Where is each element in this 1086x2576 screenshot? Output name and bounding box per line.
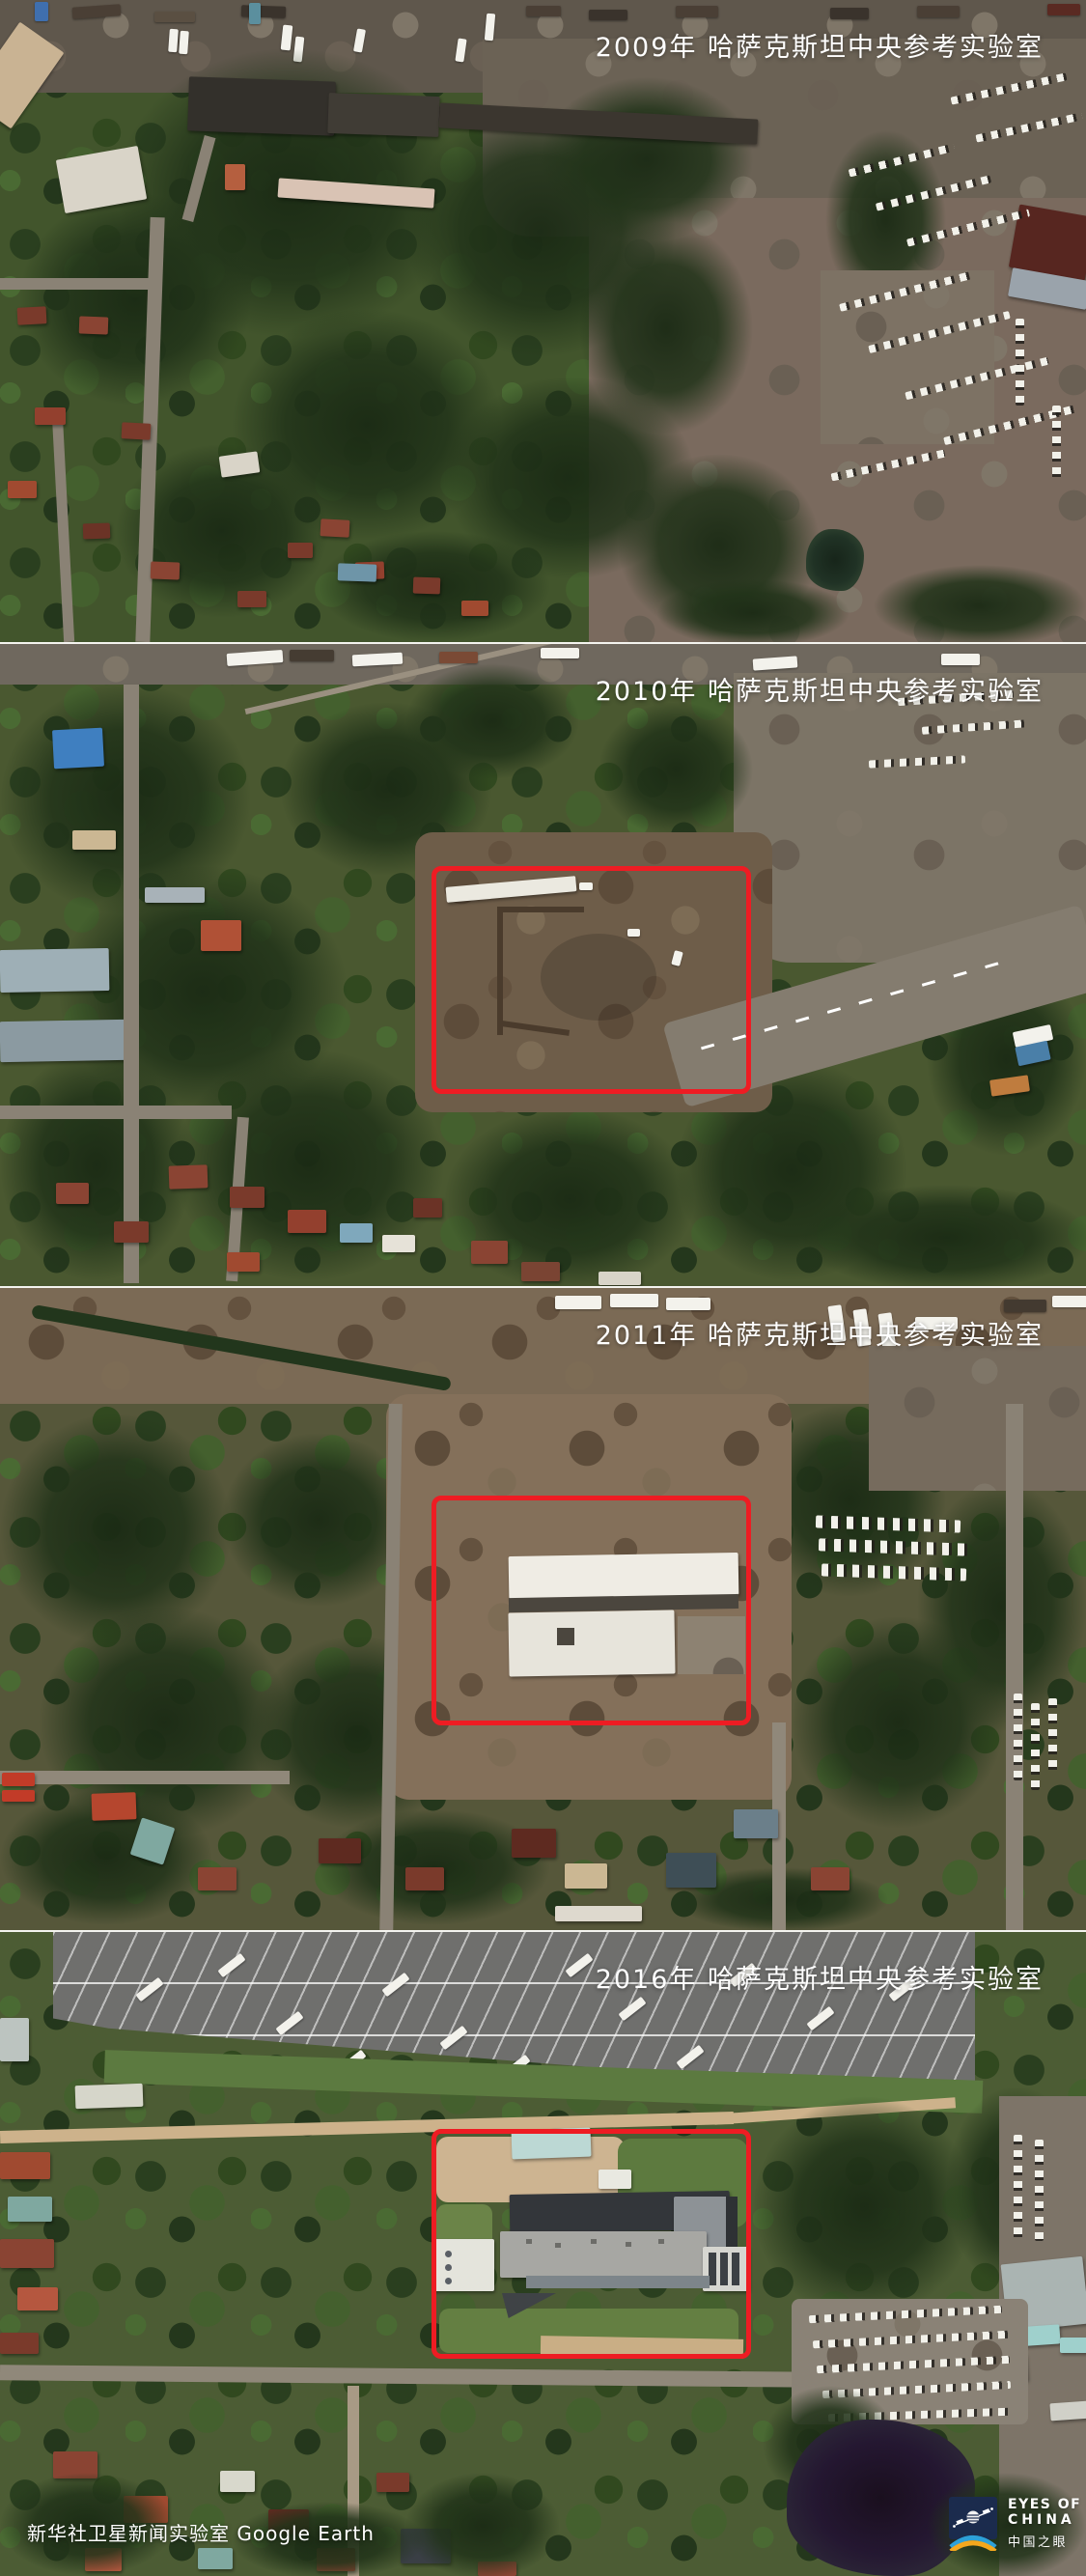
house-roof bbox=[512, 1829, 556, 1858]
house-roof bbox=[413, 1198, 442, 1218]
market-stall-roof bbox=[2, 1790, 35, 1802]
train-car bbox=[35, 2, 48, 21]
panel-year-label: 2010年 哈萨克斯坦中央参考实验室 bbox=[596, 670, 1044, 708]
panel-divider bbox=[0, 1286, 1086, 1288]
house-roof bbox=[83, 523, 111, 540]
house-roof bbox=[35, 407, 66, 425]
trees-patch bbox=[405, 663, 579, 779]
credit-text: 新华社卫星新闻实验室 Google Earth bbox=[27, 2518, 375, 2546]
satellite-panel-2016: 2016年 哈萨克斯坦中央参考实验室 bbox=[0, 1932, 1086, 2576]
trees-patch bbox=[874, 565, 1086, 642]
house-roof bbox=[565, 1863, 607, 1889]
house-roof bbox=[734, 1809, 778, 1838]
truck bbox=[249, 3, 261, 24]
house-roof bbox=[338, 563, 377, 581]
house-roof bbox=[17, 306, 47, 325]
building-roof bbox=[52, 728, 104, 770]
eyes-of-china-logo-icon bbox=[949, 2497, 997, 2551]
car-row bbox=[1016, 319, 1024, 406]
truck bbox=[179, 31, 189, 55]
house-roof bbox=[169, 1164, 209, 1189]
warehouse-roof bbox=[327, 93, 439, 137]
train-car bbox=[526, 6, 561, 16]
logo-line-2: CHINA bbox=[1008, 2512, 1081, 2528]
satellite-panel-2011: 2011年 哈萨克斯坦中央参考实验室 bbox=[0, 1288, 1086, 1930]
market-stall-roof bbox=[2, 1773, 35, 1786]
warehouse-roof bbox=[187, 76, 336, 135]
house-roof bbox=[230, 1187, 265, 1208]
house-roof bbox=[413, 577, 441, 595]
house-roof bbox=[56, 1183, 89, 1204]
house-roof bbox=[198, 1867, 237, 1890]
house-roof bbox=[555, 1906, 642, 1921]
road bbox=[124, 685, 139, 1283]
train-car bbox=[676, 6, 718, 17]
car-row bbox=[1031, 1703, 1040, 1790]
trees-patch bbox=[656, 579, 849, 642]
car-row bbox=[1014, 2135, 1022, 2241]
trees-patch bbox=[19, 193, 251, 406]
bus bbox=[555, 1296, 601, 1309]
house-roof bbox=[8, 481, 37, 498]
trees-patch bbox=[792, 1616, 1004, 1829]
building-roof bbox=[75, 2084, 144, 2109]
house-roof bbox=[376, 2473, 409, 2492]
eyes-of-china-logo: EYES OF CHINA 中国之眼 bbox=[949, 2497, 1081, 2551]
house-roof bbox=[599, 1272, 641, 1285]
train-car bbox=[290, 650, 334, 661]
pond bbox=[806, 529, 864, 591]
market-roof bbox=[1060, 2338, 1086, 2353]
house-roof bbox=[92, 1792, 137, 1821]
house-roof bbox=[0, 2152, 50, 2179]
train-car bbox=[917, 6, 960, 17]
house-roof bbox=[8, 2197, 52, 2222]
barracks-roof bbox=[0, 1020, 125, 1062]
house-roof bbox=[227, 1252, 260, 1272]
train-car bbox=[439, 652, 478, 663]
car-row bbox=[1014, 1694, 1022, 1780]
house-roof bbox=[340, 1223, 373, 1243]
truck bbox=[1052, 1296, 1086, 1307]
trees-patch bbox=[579, 222, 753, 434]
panel-divider bbox=[0, 642, 1086, 644]
train-car bbox=[1047, 4, 1080, 15]
road bbox=[0, 1106, 232, 1119]
car-row bbox=[1048, 1698, 1057, 1776]
annotation-box-2010 bbox=[432, 866, 751, 1094]
house-roof bbox=[114, 1221, 149, 1243]
house-roof bbox=[461, 601, 488, 616]
house-roof bbox=[79, 316, 109, 334]
building-roof bbox=[145, 887, 205, 903]
trees-patch bbox=[753, 2096, 975, 2318]
house-roof bbox=[471, 1241, 508, 1264]
car-row bbox=[1052, 406, 1061, 483]
panel-divider bbox=[0, 1930, 1086, 1932]
house-roof bbox=[220, 2471, 255, 2492]
house-roof bbox=[237, 591, 266, 607]
truck bbox=[168, 29, 179, 53]
annotation-box-2011 bbox=[432, 1496, 751, 1725]
road bbox=[0, 1771, 290, 1784]
train-car bbox=[830, 8, 869, 19]
house-roof bbox=[198, 2548, 233, 2569]
panel-year-label: 2016年 哈萨克斯坦中央参考实验室 bbox=[596, 1958, 1044, 1996]
parking-area bbox=[869, 1346, 1086, 1491]
house-roof bbox=[122, 422, 152, 440]
house-roof bbox=[319, 1838, 361, 1863]
annotation-box-2016 bbox=[432, 2129, 751, 2359]
house-roof bbox=[382, 1235, 415, 1252]
train-car bbox=[941, 654, 980, 665]
house-roof bbox=[17, 2287, 58, 2310]
house-roof bbox=[288, 543, 313, 558]
house-roof bbox=[405, 1867, 444, 1890]
house-roof bbox=[151, 561, 181, 579]
house-roof bbox=[225, 164, 245, 190]
trees-patch bbox=[405, 2473, 560, 2576]
logo-line-3: 中国之眼 bbox=[1008, 2532, 1081, 2550]
satellite-panel-2010: 2010年 哈萨克斯坦中央参考实验室 bbox=[0, 644, 1086, 1286]
truck bbox=[1004, 1300, 1046, 1312]
house-roof bbox=[288, 1210, 326, 1233]
market-roof bbox=[1049, 2401, 1086, 2422]
trees-patch bbox=[599, 702, 753, 837]
building-roof bbox=[72, 830, 116, 850]
trees-patch bbox=[541, 77, 753, 241]
house-roof bbox=[811, 1867, 849, 1890]
house-roof bbox=[521, 1262, 560, 1281]
logo-text-block: EYES OF CHINA 中国之眼 bbox=[1008, 2497, 1081, 2550]
trees-patch bbox=[801, 1185, 1086, 1286]
barracks-roof bbox=[0, 948, 109, 993]
road bbox=[0, 278, 154, 290]
bus bbox=[666, 1298, 710, 1310]
satellite-panel-2009: 2009年 哈萨克斯坦中央参考实验室 bbox=[0, 0, 1086, 642]
house-roof bbox=[666, 1853, 716, 1888]
bus bbox=[610, 1294, 658, 1307]
panel-year-label: 2011年 哈萨克斯坦中央参考实验室 bbox=[596, 1314, 1044, 1352]
logo-line-1: EYES OF bbox=[1008, 2497, 1081, 2512]
train-car bbox=[241, 5, 286, 18]
train-car bbox=[154, 12, 195, 22]
train-car bbox=[541, 648, 579, 658]
building-roof bbox=[0, 2018, 29, 2061]
house-roof bbox=[320, 518, 350, 538]
trees-patch bbox=[0, 1050, 193, 1281]
parking-area bbox=[821, 270, 994, 444]
satellite-comparison-graphic: 2009年 哈萨克斯坦中央参考实验室 bbox=[0, 0, 1086, 2576]
house-roof bbox=[0, 2239, 54, 2268]
train-car bbox=[589, 10, 627, 20]
house-roof bbox=[201, 920, 241, 951]
road bbox=[0, 2365, 821, 2387]
road bbox=[1006, 1404, 1023, 1930]
car-row bbox=[1035, 2140, 1044, 2241]
panel-year-label: 2009年 哈萨克斯坦中央参考实验室 bbox=[596, 26, 1044, 64]
road bbox=[52, 415, 74, 642]
house-roof bbox=[0, 2333, 39, 2354]
